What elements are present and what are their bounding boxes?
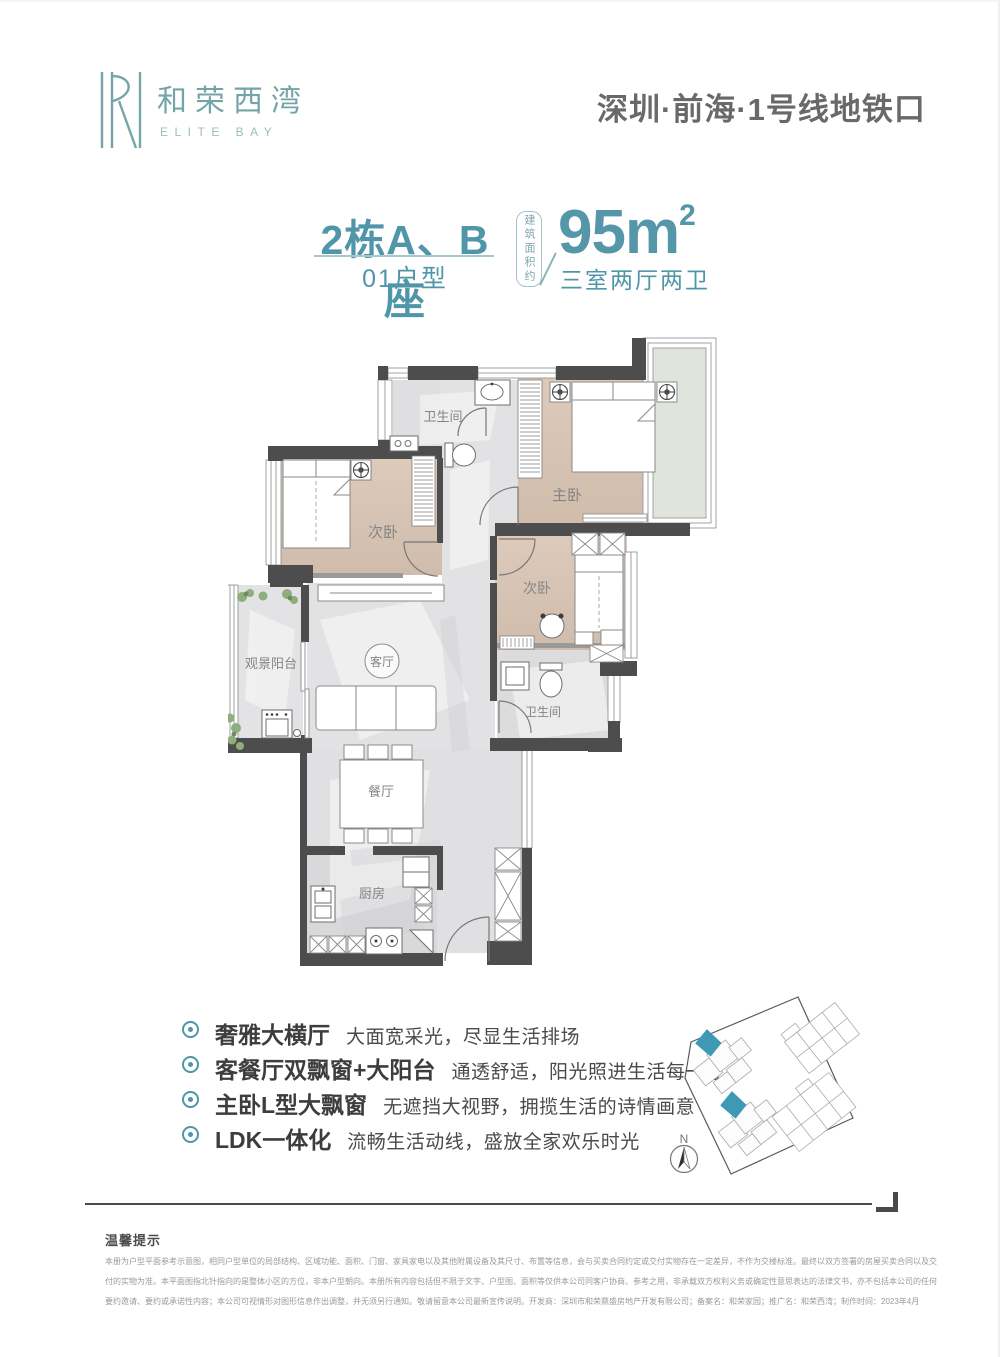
compass-north-label: N [680,1132,689,1146]
bullet-dot-icon [182,1021,199,1038]
notice-text: 本册为户型平面参考示意图，相同户型单位的局部结构、区域功能、面积、门窗、家具家电… [105,1252,905,1312]
room-label-bathroom-top: 卫生间 [423,409,462,424]
floor-plan: 卫生间 主卧 次卧 次卧 观景阳台 卫生间 餐厅 厨房 客厅 [228,332,720,990]
room-label-bedroom-left: 次卧 [368,524,398,541]
unit-type: 01户型 [303,259,507,295]
feature-item: 客餐厅双飘窗+大阳台 通透舒适，阳光照进生活每一寸 [182,1051,662,1073]
area-superscript: 2 [679,199,695,232]
site-map: N [645,990,910,1190]
feature-list: 奢雅大横厅 大面宽采光，尽显生活排场 客餐厅双飘窗+大阳台 通透舒适，阳光照进生… [182,1016,662,1156]
feature-title: 主卧L型大飘窗 [215,1086,367,1120]
feature-item: LDK一体化 流畅生活动线，盛放全家欢乐时光 [182,1121,662,1143]
feature-title: 奢雅大横厅 [215,1016,330,1050]
flyer-page: 和荣西湾 ELITE BAY 深圳·前海·1号线地铁口 2栋A、B座 01户型 … [0,0,1000,1357]
area-label-bracket: 建筑面积约 [516,211,542,287]
building-outline-2 [767,1066,856,1151]
location-text: 深圳·前海·1号线地铁口 [597,84,926,129]
footer-corner-mark [876,1192,898,1212]
room-label-living: 客厅 [370,654,394,669]
room-label-balcony: 观景阳台 [245,656,297,671]
feature-title: LDK一体化 [215,1121,331,1155]
living-room-badge: 客厅 [365,644,399,678]
area-label: 建筑面积约 [521,214,537,284]
title-underline [314,255,494,257]
notice-line: 付的实物为准。本平面图指北针指向的是整体小区的方位，非本户型朝向。本册所有内容包… [105,1272,905,1292]
sofa [316,686,436,730]
notice-title: 温馨提示 [105,1230,161,1249]
building-outline-1 [780,996,860,1073]
bullet-dot-icon [182,1091,199,1108]
brand-name-en: ELITE BAY [160,125,278,139]
compass-icon: N [671,1132,698,1173]
feature-desc: 大面宽采光，尽显生活排场 [346,1022,580,1049]
room-label-bedroom-right: 次卧 [523,580,551,596]
bed-secondary-right [575,555,623,645]
logo-mark-icon [102,72,140,148]
room-label-kitchen: 厨房 [359,886,385,901]
room-label-bathroom-lower: 卫生间 [525,705,561,719]
feature-desc: 流畅生活动线，盛放全家欢乐时光 [347,1127,640,1154]
room-label-dining: 餐厅 [368,784,394,799]
footer-separator [85,1203,872,1205]
area-value: 95m2 [558,197,695,268]
brand-name-cn: 和荣西湾 [157,85,309,118]
feature-item: 主卧L型大飘窗 无遮挡大视野，拥揽生活的诗情画意 [182,1086,662,1108]
tower-cluster-1 [679,1016,762,1099]
room-layout-text: 三室两厅两卫 [560,261,710,295]
feature-title: 客餐厅双飘窗+大阳台 [215,1051,435,1085]
notice-line: 要约邀请、要约或承诺性内容；本公司可视情形对图形信息作出调整，并无须另行通知。敬… [105,1292,905,1312]
chair-icon [540,614,564,639]
entry-opening [443,953,487,967]
bullet-dot-icon [182,1126,199,1143]
bullet-dot-icon [182,1056,199,1073]
room-label-master: 主卧 [552,487,582,504]
feature-item: 奢雅大横厅 大面宽采光，尽显生活排场 [182,1016,662,1038]
brand-logo: 和荣西湾 ELITE BAY [90,48,360,168]
notice-line: 本册为户型平面参考示意图，相同户型单位的局部结构、区域功能、面积、门窗、家具家电… [105,1252,905,1272]
tv-console [318,585,444,601]
bed-secondary-left [283,460,350,548]
